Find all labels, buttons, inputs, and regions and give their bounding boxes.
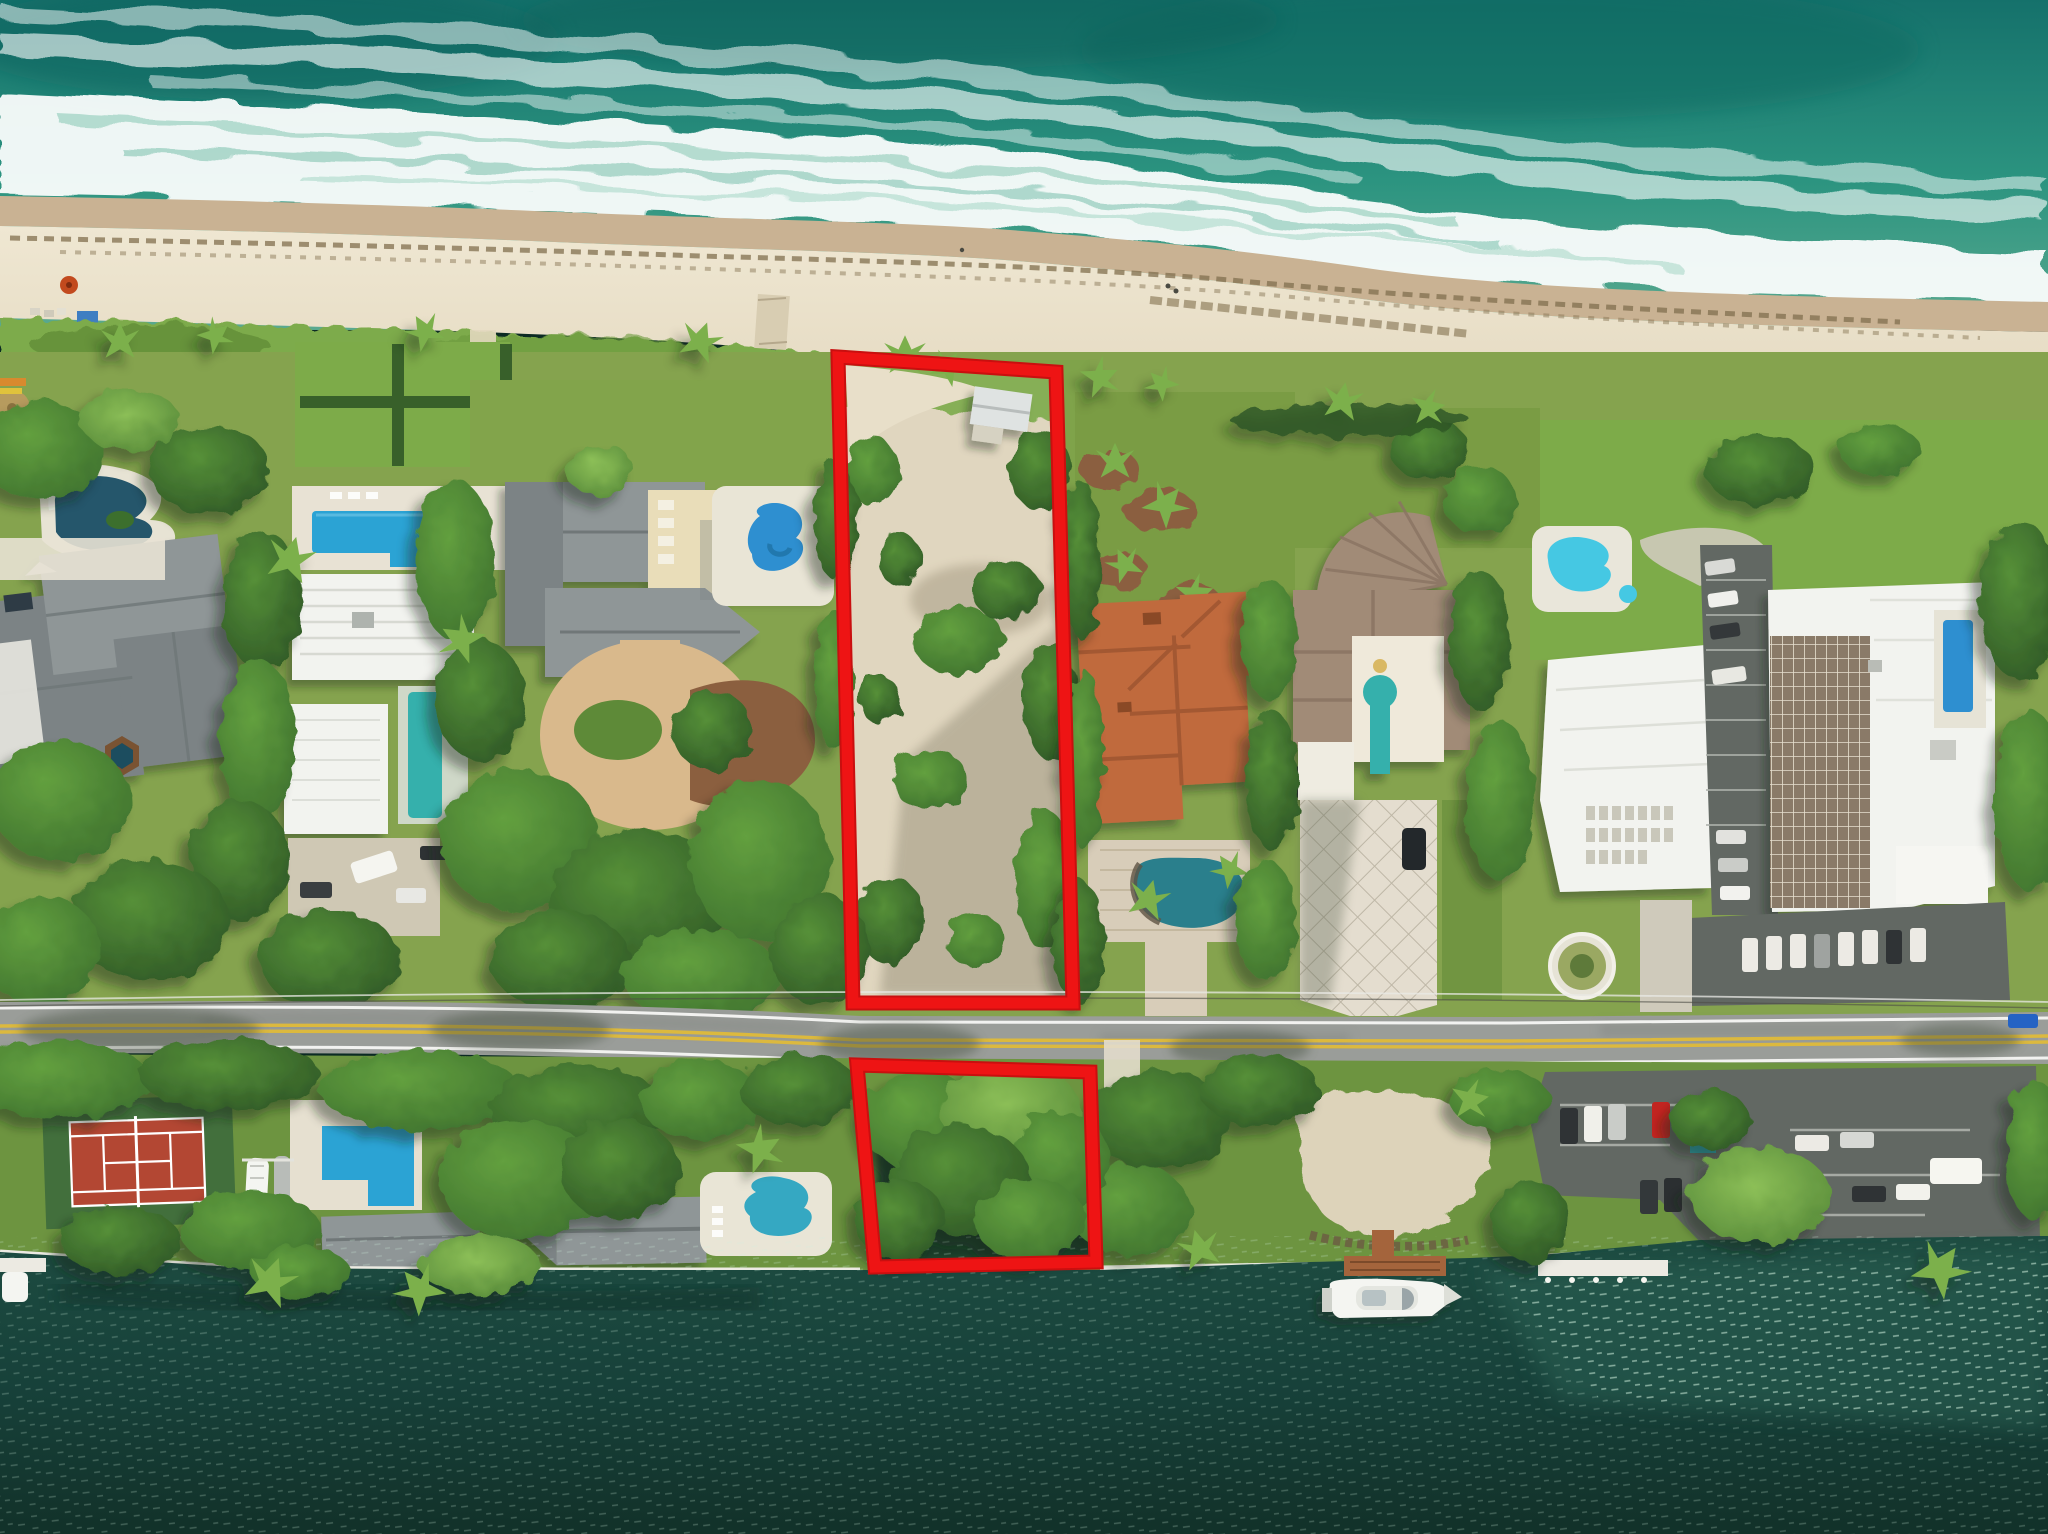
solar-panels bbox=[3, 592, 33, 612]
aerial-photo-canvas bbox=[0, 0, 2048, 1534]
kidney-pool bbox=[1532, 526, 1637, 612]
dark-car bbox=[300, 882, 332, 898]
dock-far-left bbox=[0, 1258, 46, 1272]
condo-lap-pool bbox=[1934, 610, 1986, 728]
beach-umbrella bbox=[60, 276, 78, 294]
swim-platform bbox=[1322, 1288, 1332, 1312]
blue-car-on-road bbox=[2008, 1014, 2038, 1028]
driveway-d bbox=[1145, 942, 1207, 1016]
dark-suv bbox=[1402, 828, 1426, 870]
beach-boardwalk-estate bbox=[754, 294, 790, 350]
small-boat-left bbox=[2, 1272, 28, 1302]
driveway-a bbox=[0, 538, 165, 580]
parking-canyon bbox=[1700, 545, 1778, 915]
yacht-cockpit bbox=[1362, 1290, 1386, 1306]
spa bbox=[1619, 585, 1637, 603]
flat-roof-house-2 bbox=[284, 704, 388, 834]
white-car bbox=[396, 888, 426, 903]
vacant-lot-2-trees bbox=[855, 1062, 1110, 1262]
red-car bbox=[1652, 1102, 1670, 1138]
south-parking-row bbox=[1690, 902, 2010, 1006]
bright-blue-pool bbox=[322, 1126, 414, 1180]
balcony-grid-facade bbox=[1770, 636, 1870, 908]
diamond-driveway bbox=[1300, 800, 1437, 1016]
vacant-beachfront-lot bbox=[838, 335, 1076, 1003]
courtyard-d bbox=[1088, 840, 1253, 942]
white-truck bbox=[1930, 1158, 1982, 1184]
fountain-circle bbox=[1550, 934, 1614, 998]
aerial-photo bbox=[0, 0, 2048, 1534]
